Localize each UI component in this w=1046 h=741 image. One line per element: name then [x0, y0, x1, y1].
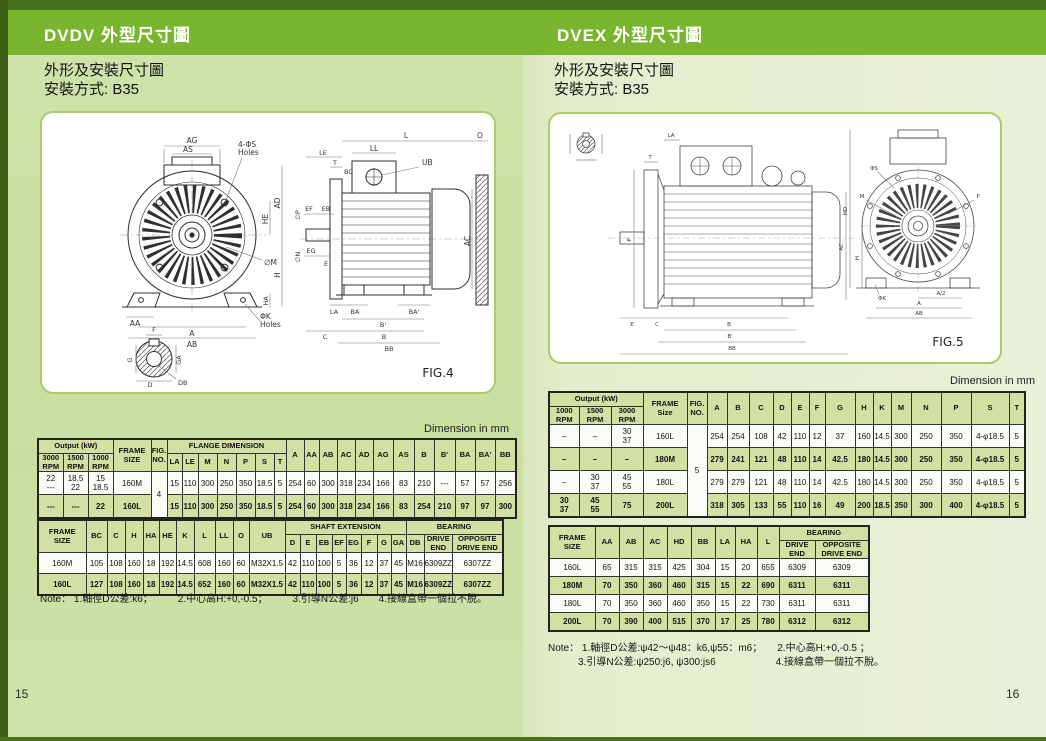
page-edge-bottom: [0, 737, 1046, 741]
table-cell: 400: [941, 494, 971, 518]
table-cell: 42: [285, 553, 300, 574]
table-header-row: Output (kW)FRAME SizeFIG. NO.ABCDEFGHKMN…: [549, 392, 1025, 407]
table-cell: 318: [337, 472, 355, 495]
table-cell: 166: [373, 472, 393, 495]
table-cell: 30 37: [611, 425, 643, 448]
table-cell: 350: [236, 472, 255, 495]
table-cell: 318: [707, 494, 727, 518]
header-cell: HD: [667, 526, 691, 559]
header-cell: L: [194, 520, 215, 553]
table-cell: 160M: [113, 472, 151, 495]
table-cell: 254: [727, 425, 749, 448]
table-cell: 75: [611, 494, 643, 518]
header-cell: D: [773, 392, 791, 425]
table-cell: M32X1.5: [249, 553, 285, 574]
table-cell: 110: [182, 495, 198, 519]
dim-label-h: H: [855, 256, 861, 260]
table-cell: 360: [643, 577, 667, 595]
dim-label-o: O: [477, 131, 483, 140]
dim-label-b2: B': [380, 321, 386, 329]
table-cell: 110: [791, 471, 809, 494]
table-cell: 460: [667, 595, 691, 613]
mounting-type: 安裝方式: B35: [44, 80, 164, 99]
table-cell: 250: [217, 472, 236, 495]
table-cell: 250: [911, 425, 941, 448]
table-cell: 22: [735, 577, 757, 595]
table-cell: 254: [707, 425, 727, 448]
table-cell: 350: [691, 595, 715, 613]
table-cell: –: [549, 471, 579, 494]
table-cell: 25: [735, 613, 757, 632]
table-cell: 14.5: [873, 448, 891, 471]
table-row: ––30 37160L525425410842110123716014.5300…: [549, 425, 1025, 448]
table-cell: 15: [715, 559, 735, 577]
table-row: 180L70350360460350152273063116311: [549, 595, 869, 613]
header-cell: GA: [391, 535, 406, 553]
dim-label-ab: AB: [187, 340, 197, 349]
table-cell: –: [549, 448, 579, 471]
table-cell: 65: [595, 559, 619, 577]
table-cell: 30 37: [549, 494, 579, 518]
header-cell: L: [757, 526, 779, 559]
table-cell: 300: [198, 495, 217, 519]
dimension-unit-label: Dimension in mm: [835, 375, 1035, 387]
table-cell: –: [579, 448, 611, 471]
header-cell: HA: [735, 526, 757, 559]
header-cell: AG: [373, 439, 393, 472]
header-cell: P: [236, 454, 255, 472]
table-cell: 5: [274, 472, 286, 495]
header-cell: DB: [406, 535, 424, 553]
table-row: 30 3745 5575200L31830513355110164920018.…: [549, 494, 1025, 518]
table-cell: 14.5: [176, 553, 194, 574]
dim-label-k-dia: ΦK: [878, 296, 886, 302]
table-cell: 254: [414, 495, 434, 519]
dim-label-a: A: [189, 329, 195, 338]
table-row: 160L65315315425304152065563096309: [549, 559, 869, 577]
table-cell: 200L: [643, 494, 687, 518]
table-cell: 300: [198, 472, 217, 495]
table-cell: 110: [300, 553, 316, 574]
table-cell: 17: [715, 613, 735, 632]
dim-label-b: B: [727, 322, 731, 328]
header-cell: FRAME Size: [643, 392, 687, 425]
dim-label-s-dia: ΦS: [870, 166, 878, 172]
header-cell: M: [198, 454, 217, 472]
header-cell: LL: [215, 520, 233, 553]
dim-label-bc: BC: [344, 168, 353, 176]
dim-label-ba2: BA': [409, 308, 420, 316]
table-cell: 22 ---: [38, 472, 63, 495]
table-cell: 304: [691, 559, 715, 577]
dim-label-ab: AB: [915, 311, 923, 317]
table-cell: 370: [691, 613, 715, 632]
dim-label-c: C: [655, 322, 659, 328]
table-cell: 300: [319, 472, 337, 495]
dim-label-p2: P: [976, 194, 980, 200]
dim-label-t: T: [332, 159, 337, 167]
flange-dimension-table-dvdv: Output (kW)FRAME SIZEFIG. NO.FLANGE DIME…: [37, 438, 517, 519]
flange-dimension-table-dvex: Output (kW)FRAME SizeFIG. NO.ABCDEFGHKMN…: [548, 391, 1026, 518]
header-cell: AC: [643, 526, 667, 559]
table-cell: 133: [749, 494, 773, 518]
table-cell: 14.5: [873, 471, 891, 494]
table-cell: 42.5: [825, 471, 855, 494]
mounting-type: 安裝方式: B35: [554, 80, 674, 99]
table-cell: 180: [855, 448, 873, 471]
table-cell: 515: [667, 613, 691, 632]
dim-label-ac: AC: [839, 243, 845, 251]
header-cell: F: [809, 392, 825, 425]
table-cell: 390: [619, 613, 643, 632]
table-cell: 6311: [815, 595, 869, 613]
shaft-bearing-table-dvdv: FRAME SIZEBCCHHAHEKLLLOUBSHAFT EXTENSION…: [37, 519, 504, 596]
header-cell: H: [125, 520, 143, 553]
header-cell: 1500 RPM: [63, 454, 88, 472]
dimension-unit-label: Dimension in mm: [309, 423, 509, 435]
table-cell: 15: [167, 472, 182, 495]
table-cell: 608: [194, 553, 215, 574]
header-cell: Output (kW): [38, 439, 113, 454]
table-cell: 6307ZZ: [453, 553, 503, 574]
header-cell: B': [434, 439, 455, 472]
header-cell: HA: [143, 520, 159, 553]
header-cell: K: [873, 392, 891, 425]
table-cell: 300: [891, 448, 911, 471]
dim-label-d: D: [147, 381, 152, 388]
table-cell: 5: [274, 495, 286, 519]
table-cell: 4-φ18.5: [971, 425, 1009, 448]
table-cell: 250: [911, 448, 941, 471]
table-cell: 83: [393, 472, 414, 495]
dim-label-p-dia: ∅P: [294, 210, 302, 220]
table-cell: 350: [619, 595, 643, 613]
fig4-drawing: AG AS 4-ΦS Holes HE AD ∅M HA H AA A AB Φ…: [42, 113, 490, 388]
table-cell: 5: [1009, 425, 1025, 448]
dim-label-ga: GA: [175, 355, 183, 365]
table-cell: 14: [809, 471, 825, 494]
dim-label-ll: LL: [370, 144, 379, 153]
table-cell: 83: [393, 495, 414, 519]
dim-label-la: LA: [330, 308, 339, 316]
table-cell: 36: [346, 553, 361, 574]
dim-label-n-dia: ∅N: [294, 252, 302, 263]
table-cell: 60: [233, 553, 249, 574]
header-cell: DRIVE END: [424, 535, 453, 553]
table-cell: 400: [643, 613, 667, 632]
drawing-subtitle-right: 外形及安裝尺寸圖 安裝方式: B35: [554, 61, 674, 99]
dim-label-g: G: [126, 357, 134, 362]
header-cell: AS: [393, 439, 414, 472]
dim-label-le: LE: [319, 149, 327, 157]
dim-label-e: E: [630, 322, 634, 328]
dim-label-ub: UB: [422, 158, 433, 167]
header-cell: FRAME SIZE: [549, 526, 595, 559]
table-cell: 241: [727, 448, 749, 471]
table-cell: 6311: [815, 577, 869, 595]
fig5-drawing: T LA P AC E C B B' BB L ΦS M P HD H ΦK A…: [550, 114, 996, 358]
table-cell: 160L: [643, 425, 687, 448]
table-cell: 6312: [815, 613, 869, 632]
table-cell: 121: [749, 471, 773, 494]
table-cell: 279: [707, 471, 727, 494]
page-number: 15: [15, 687, 28, 701]
header-cell: AB: [319, 439, 337, 472]
table-row: 200L70390400515370172578063126312: [549, 613, 869, 632]
table-cell: 5: [687, 425, 707, 518]
dim-label-c: C: [323, 333, 328, 341]
table-cell: 350: [941, 425, 971, 448]
table-cell: 70: [595, 613, 619, 632]
header-cell: 1500 RPM: [579, 407, 611, 425]
header-cell: A: [286, 439, 304, 472]
table-cell: 250: [217, 495, 236, 519]
table-cell: 180M: [643, 448, 687, 471]
table-cell: 200L: [549, 613, 595, 632]
table-cell: 192: [159, 553, 176, 574]
table-cell: 5: [332, 553, 346, 574]
table-cell: 37: [377, 553, 391, 574]
table-cell: 18.5: [255, 472, 274, 495]
header-cell: C: [107, 520, 125, 553]
dim-label-s-holes2: Holes: [238, 148, 259, 157]
header-cell: O: [233, 520, 249, 553]
table-cell: 180M: [549, 577, 595, 595]
header-cell: K: [176, 520, 194, 553]
table-cell: 48: [773, 448, 791, 471]
header-cell: D: [285, 535, 300, 553]
table-cell: 22: [735, 595, 757, 613]
table-cell: 110: [182, 472, 198, 495]
table-cell: 350: [236, 495, 255, 519]
table-cell: 160: [215, 553, 233, 574]
table-cell: 655: [757, 559, 779, 577]
table-cell: 4: [151, 472, 167, 519]
table-header-row: FRAME SIZEBCCHHAHEKLLLOUBSHAFT EXTENSION…: [38, 520, 503, 535]
header-cell: B: [727, 392, 749, 425]
table-cell: 18: [143, 553, 159, 574]
table-cell: 42: [773, 425, 791, 448]
table-cell: 160L: [113, 495, 151, 519]
dim-label-ag: AG: [187, 136, 198, 145]
note-text: Note： 1.軸徑D公差:k6； 2.中心高H:+0,-0.5； 3.引導N公…: [40, 593, 510, 607]
dim-label-f: F: [152, 326, 156, 334]
dim-label-eb: EB: [322, 205, 331, 213]
table-cell: ---: [63, 495, 88, 519]
outline-mounting-title: 外形及安裝尺寸圖: [554, 61, 674, 80]
table-cell: 70: [595, 595, 619, 613]
header-cell: H: [855, 392, 873, 425]
header-cell: LA: [167, 454, 182, 472]
table-cell: 300: [891, 471, 911, 494]
header-cell: OPPOSITE DRIVE END: [815, 541, 869, 559]
table-cell: 315: [619, 559, 643, 577]
header-cell: AD: [355, 439, 373, 472]
table-cell: 250: [911, 471, 941, 494]
dim-label-db: DB: [178, 379, 187, 387]
table-cell: 22: [88, 495, 113, 519]
header-cell: LE: [182, 454, 198, 472]
table-row: –30 3745 55180L279279121481101442.518014…: [549, 471, 1025, 494]
table-cell: 18.5: [873, 494, 891, 518]
header-cell: SHAFT EXTENSION: [285, 520, 406, 535]
table-cell: 6312: [779, 613, 815, 632]
table-cell: 160L: [549, 559, 595, 577]
catalog-spread: DVDV 外型尺寸圖 DVEX 外型尺寸圖 外形及安裝尺寸圖 安裝方式: B35…: [0, 0, 1046, 741]
figure-caption: FIG.5: [932, 335, 963, 349]
table-cell: 6311: [779, 595, 815, 613]
header-cell: E: [791, 392, 809, 425]
table-cell: ---: [434, 472, 455, 495]
table-cell: 5: [1009, 471, 1025, 494]
header-cell: BA: [455, 439, 475, 472]
header-cell: EB: [316, 535, 332, 553]
header-cell: BEARING: [406, 520, 503, 535]
table-cell: 234: [355, 472, 373, 495]
dim-label-l: L: [404, 131, 409, 140]
table-cell: 70: [595, 577, 619, 595]
header-cell: G: [825, 392, 855, 425]
table-header-row: FRAME SIZEAAABACHDBBLAHALBEARING: [549, 526, 869, 541]
table-cell: 305: [727, 494, 749, 518]
table-cell: 48: [773, 471, 791, 494]
header-bar: DVDV 外型尺寸圖 DVEX 外型尺寸圖: [8, 10, 1046, 55]
dim-label-bb: BB: [728, 346, 736, 352]
table-row: 160M1051081601819214.560816060M32X1.5421…: [38, 553, 503, 574]
table-cell: 105: [86, 553, 107, 574]
table-cell: 14.5: [873, 425, 891, 448]
header-cell: 1000 RPM: [88, 454, 113, 472]
table-cell: 18.5: [255, 495, 274, 519]
table-cell: 300: [891, 425, 911, 448]
table-cell: 108: [749, 425, 773, 448]
table-cell: 166: [373, 495, 393, 519]
figure-5-box: T LA P AC E C B B' BB L ΦS M P HD H ΦK A…: [548, 112, 1002, 364]
dim-label-a: A: [917, 301, 921, 307]
dim-label-m-dia: ∅M: [264, 258, 277, 267]
dim-label-ef: EF: [305, 205, 313, 213]
header-cell: UB: [249, 520, 285, 553]
header-cell: B: [414, 439, 434, 472]
dim-label-ad: AD: [273, 197, 282, 208]
table-cell: M16: [406, 553, 424, 574]
header-cell: F: [361, 535, 377, 553]
dim-label-hd: HD: [843, 207, 849, 215]
header-cell: 3000 RPM: [38, 454, 63, 472]
header-cell: Output (kW): [549, 392, 643, 407]
table-cell: 315: [691, 577, 715, 595]
header-cell: FIG. NO.: [687, 392, 707, 425]
table-cell: 4-φ18.5: [971, 494, 1009, 518]
table-cell: 350: [891, 494, 911, 518]
section-title-dvdv: DVDV 外型尺寸圖: [44, 21, 191, 46]
dim-label-ba: BA: [351, 308, 360, 316]
figure-4-box: AG AS 4-ΦS Holes HE AD ∅M HA H AA A AB Φ…: [40, 111, 496, 394]
header-cell: E: [300, 535, 316, 553]
table-cell: 42.5: [825, 448, 855, 471]
table-cell: 160: [855, 425, 873, 448]
dim-label-he: HE: [261, 214, 270, 225]
table-cell: 20: [735, 559, 757, 577]
header-cell: AC: [337, 439, 355, 472]
header-cell: C: [749, 392, 773, 425]
dim-label-ac: AC: [463, 236, 472, 246]
table-cell: –: [611, 448, 643, 471]
header-cell: BA': [475, 439, 495, 472]
header-cell: LA: [715, 526, 735, 559]
dim-label-h: H: [273, 272, 282, 278]
dim-label-as: AS: [183, 145, 193, 154]
header-cell: BEARING: [779, 526, 869, 541]
table-cell: 100: [316, 553, 332, 574]
table-cell: 97: [455, 495, 475, 519]
note-text: Note： 1.軸徑D公差:ψ42～ψ48：k6,ψ55：m6； 2.中心高H:…: [548, 642, 1018, 670]
header-cell: BC: [86, 520, 107, 553]
table-cell: 234: [355, 495, 373, 519]
header-cell: BB: [495, 439, 516, 472]
dim-label-p: P: [627, 238, 633, 242]
drawing-subtitle-left: 外形及安裝尺寸圖 安裝方式: B35: [44, 61, 164, 99]
header-cell: HE: [159, 520, 176, 553]
dim-label-eg: EG: [306, 247, 315, 255]
table-cell: 18.5 22: [63, 472, 88, 495]
header-cell: T: [1009, 392, 1025, 425]
header-cell: DRIVE END: [779, 541, 815, 559]
table-cell: 300: [495, 495, 516, 519]
table-cell: 55: [773, 494, 791, 518]
table-cell: 110: [791, 448, 809, 471]
dim-label-b: B: [382, 333, 386, 341]
table-cell: 6309: [779, 559, 815, 577]
header-cell: N: [911, 392, 941, 425]
table-cell: 780: [757, 613, 779, 632]
table-cell: 45 55: [611, 471, 643, 494]
header-cell: FRAME SIZE: [38, 520, 86, 553]
table-cell: 210: [434, 495, 455, 519]
table-cell: 254: [286, 472, 304, 495]
header-cell: A: [707, 392, 727, 425]
dim-label-a-half: A/2: [936, 291, 945, 297]
header-cell: AB: [619, 526, 643, 559]
table-cell: 45 55: [579, 494, 611, 518]
dim-label-m: M: [860, 194, 865, 200]
table-cell: 6309: [815, 559, 869, 577]
table-cell: 200: [855, 494, 873, 518]
figure-caption: FIG.4: [422, 366, 453, 380]
table-cell: 108: [107, 553, 125, 574]
header-cell: OPPOSITE DRIVE END: [453, 535, 503, 553]
table-cell: 15: [715, 577, 735, 595]
table-cell: 37: [825, 425, 855, 448]
table-cell: 6309ZZ: [424, 553, 453, 574]
table-cell: 14: [809, 448, 825, 471]
header-cell: EF: [332, 535, 346, 553]
table-cell: 16: [809, 494, 825, 518]
section-title-dvex: DVEX 外型尺寸圖: [557, 21, 703, 46]
dim-label-ha: HA: [262, 296, 270, 306]
table-cell: 360: [643, 595, 667, 613]
table-cell: 15 18.5: [88, 472, 113, 495]
table-cell: ---: [38, 495, 63, 519]
table-cell: 5: [1009, 448, 1025, 471]
header-cell: T: [274, 454, 286, 472]
outline-mounting-title: 外形及安裝尺寸圖: [44, 61, 164, 80]
header-cell: EG: [346, 535, 361, 553]
dim-label-aa: AA: [130, 319, 141, 328]
header-cell: 3000 RPM: [611, 407, 643, 425]
table-cell: 318: [337, 495, 355, 519]
dim-label-bb: BB: [385, 345, 394, 353]
